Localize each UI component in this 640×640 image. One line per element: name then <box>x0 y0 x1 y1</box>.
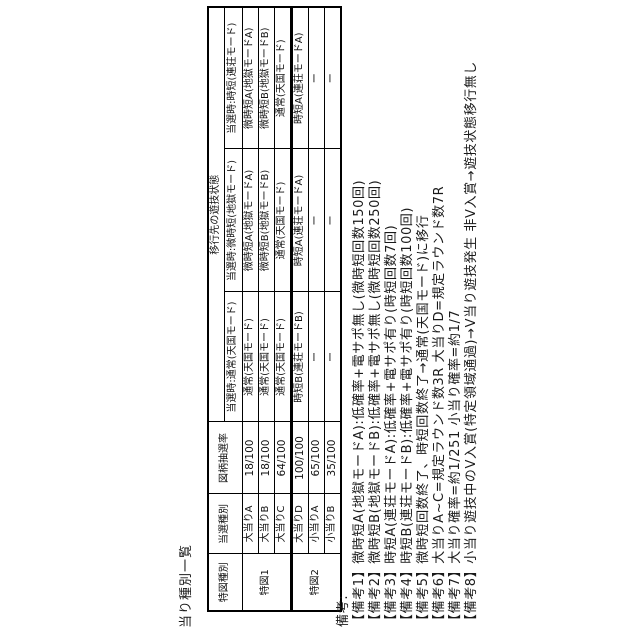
subcol-header-at-bijitan-hell: 当選時:微時短(地獄モード) <box>225 149 243 292</box>
group-cell-tokuzu2: 特図2 <box>292 554 342 611</box>
table-cell-at-jitan: 微時短B(地獄モードB) <box>259 7 275 149</box>
table-cell-type: 大当りD <box>292 494 309 554</box>
note-line-1: 【備考1】微時短A(地獄モードA):低確率+電サポ無し(微時短回数150回) <box>352 61 368 627</box>
table-cell-at-jitan: ー <box>309 7 325 149</box>
table-cell-rate: 65/100 <box>309 422 325 494</box>
group-cell-tokuzu1: 特図1 <box>243 554 292 611</box>
col-header-zugara-chusenritsu: 図柄抽選率 <box>208 422 243 494</box>
table-cell-at-bijitan: 通常(天国モード) <box>275 149 292 292</box>
col-header-tousen-shubetsu: 当選種別 <box>208 494 243 554</box>
subcol-header-at-normal-heaven: 当選時:通常(天国モード) <box>225 292 243 422</box>
table-cell-at-normal: ー <box>309 292 325 422</box>
note-line-6: 【備考6】大当りA~C=規定ラウンド数3R 大当りD=規定ラウンド数7R <box>432 61 448 627</box>
notes-label: 備考: <box>336 61 352 627</box>
note-line-3: 【備考3】時短A(連荘モードA):低確率+電サポ有り(時短回数7回) <box>384 61 400 627</box>
table-cell-at-jitan: 時短A(連荘モードA) <box>292 7 309 149</box>
note-line-7: 【備考7】大当り確率=約1/251 小当り確率=約1/7 <box>448 61 464 627</box>
table-row: 特図2 大当りD 100/100 時短B(連荘モードB) 時短A(連荘モードA)… <box>292 7 309 611</box>
note-line-4: 【備考4】時短B(連荘モードB):低確率+電サポ有り(時短回数100回) <box>400 61 416 627</box>
table-cell-rate: 18/100 <box>243 422 259 494</box>
table-cell-type: 大当りC <box>275 494 292 554</box>
table-cell-type: 大当りA <box>243 494 259 554</box>
note-line-8: 【備考8】小当り遊技中のV入賞(特定領域通過)→V当り遊技発生 非V入賞→遊技状… <box>464 61 480 627</box>
table-cell-rate: 64/100 <box>275 422 292 494</box>
table-cell-rate: 100/100 <box>292 422 309 494</box>
table-cell-at-jitan: 微時短A(地獄モードA) <box>243 7 259 149</box>
table-cell-at-normal: 通常(天国モード) <box>275 292 292 422</box>
hit-type-table: 特図種別 当選種別 図柄抽選率 移行先の遊技状態 当選時:通常(天国モード) 当… <box>207 6 342 612</box>
table-cell-rate: 18/100 <box>259 422 275 494</box>
col-header-tokuzu-shubetsu: 特図種別 <box>208 554 243 611</box>
table-row: 大当りC 64/100 通常(天国モード) 通常(天国モード) 通常(天国モード… <box>275 7 292 611</box>
table-cell-at-bijitan: ー <box>309 149 325 292</box>
table-row: 小当りA 65/100 ー ー ー <box>309 7 325 611</box>
table-cell-at-normal: 通常(天国モード) <box>259 292 275 422</box>
patent-figure-page: 当り種別一覧 特図種別 当選種別 図柄抽選率 移行先の遊技状態 当選時:通常(天… <box>0 0 640 640</box>
table-cell-type: 小当りA <box>309 494 325 554</box>
figure-title: 当り種別一覧 <box>175 544 194 628</box>
col-header-transition-state: 移行先の遊技状態 <box>208 7 225 422</box>
note-line-5: 【備考5】微時短回数終了、時短回数終了→通常(天国モード)に移行 <box>416 61 432 627</box>
table-row: 大当りB 18/100 通常(天国モード) 微時短B(地獄モードB) 微時短B(… <box>259 7 275 611</box>
table-cell-at-bijitan: 微時短A(地獄モードA) <box>243 149 259 292</box>
table-cell-at-normal: 時短B(連荘モードB) <box>292 292 309 422</box>
notes-block: 備考: 【備考1】微時短A(地獄モードA):低確率+電サポ無し(微時短回数150… <box>336 61 480 627</box>
table-cell-at-bijitan: 時短A(連荘モードA) <box>292 149 309 292</box>
note-line-2: 【備考2】微時短B(地獄モードB):低確率+電サポ無し(微時短回数250回) <box>368 61 384 627</box>
header-row-1: 特図種別 当選種別 図柄抽選率 移行先の遊技状態 <box>208 7 225 611</box>
subcol-header-at-jitan-renchan: 当選時:時短(連荘モード) <box>225 7 243 149</box>
table-cell-type: 大当りB <box>259 494 275 554</box>
table-cell-at-jitan: 通常(天国モード) <box>275 7 292 149</box>
table-cell-at-bijitan: 微時短B(地獄モードB) <box>259 149 275 292</box>
table-row: 特図1 大当りA 18/100 通常(天国モード) 微時短A(地獄モードA) 微… <box>243 7 259 611</box>
table-cell-at-normal: 通常(天国モード) <box>243 292 259 422</box>
